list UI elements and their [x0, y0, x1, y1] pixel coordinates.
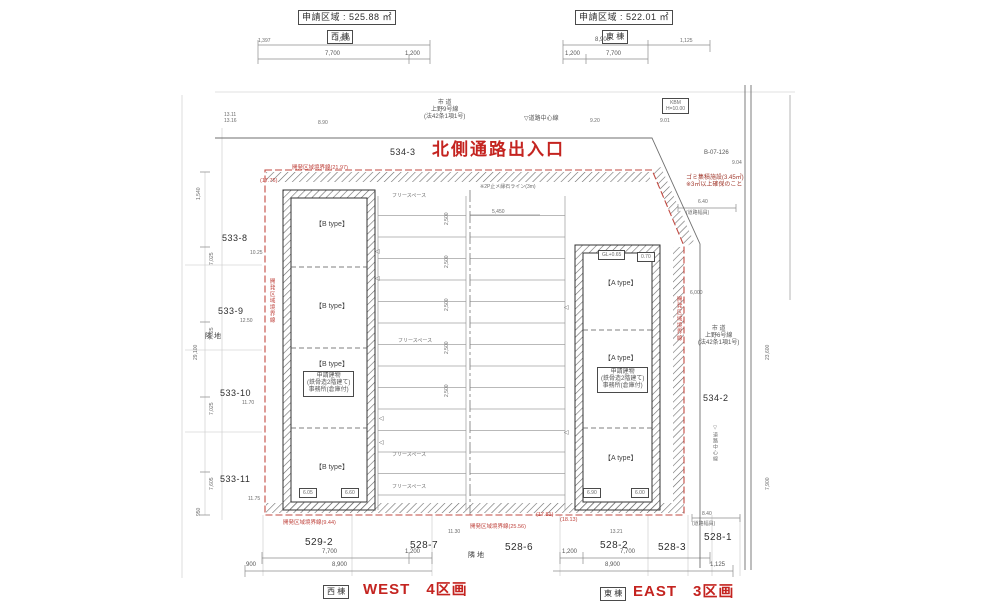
parcel-534-3: 534-3 — [390, 147, 416, 158]
spot-elev-2: 9.20 — [590, 118, 600, 124]
stall-dim-3: 2,500 — [444, 298, 450, 311]
elev-b1: 11.30 — [448, 529, 460, 535]
unit-a3-label: 【A type】 — [604, 455, 637, 463]
spot-elev-1: 8.90 — [318, 120, 328, 126]
gl-box-e-top2: 0.70 — [637, 252, 655, 262]
parcel-533-8: 533-8 — [222, 233, 248, 244]
dim-bot-east-1: 1,200 — [562, 549, 577, 556]
west-wing-caption: 西 棟 — [323, 585, 349, 599]
east-caption: EAST 3区画 — [633, 583, 734, 601]
parcel-529-2: 529-2 — [305, 537, 333, 549]
north-road-name: 市 道 上野9号線 (法42条1項1号) — [424, 100, 465, 122]
gl-box-e-top: GL+0.65 — [598, 250, 625, 260]
east-road-centerline-label: ▽道路中心線 — [712, 425, 718, 462]
dim-bot-west-total: 8,900 — [332, 562, 347, 569]
dim-top-west-total: 8,900 — [335, 37, 350, 44]
east-wing-caption: 東 棟 — [600, 587, 626, 601]
door-marker-icon-3: ◁ — [379, 416, 384, 423]
road-width-dim-ne: 6.40 — [698, 199, 708, 205]
spot-elev-nw: 13.11 13.16 — [224, 112, 237, 124]
dim-bot-west-1: 7,700 — [322, 549, 337, 556]
dim-right-2: 7,900 — [765, 477, 771, 490]
door-marker-icon-4: ◁ — [379, 440, 384, 447]
north-entrance-title: 北側通路出入口 — [432, 140, 565, 160]
dim-left-5: 7,605 — [209, 477, 215, 490]
parcel-528-3: 528-3 — [658, 542, 686, 554]
dim-east-6000: 6,000 — [690, 290, 703, 296]
road-width-label-ne: (道路幅員) — [686, 210, 709, 216]
stall-dim-2: 2,500 — [444, 255, 450, 268]
road-width-dim-se: 8.40 — [702, 511, 712, 517]
unit-b4-label: 【B type】 — [315, 464, 349, 472]
west-area-label: 申請区域 : 525.88 ㎡ — [298, 10, 396, 25]
parcel-528-1: 528-1 — [704, 532, 732, 544]
gl-box-e2: 6.00 — [631, 488, 649, 498]
benchmark-id: B-07-126 — [704, 150, 729, 157]
boundary-label-bottom-left: 開発区域境界線(9.44) — [283, 520, 336, 527]
gl-box-w1: 6.05 — [299, 488, 317, 498]
aisle-dim: 5,450 — [492, 209, 505, 215]
dim-top-west-left: 1,397 — [258, 38, 271, 44]
dim-left-total: 29,100 — [193, 345, 199, 360]
east-building-note: 申請建物 (鉄骨造2階建て) 事務所(倉庫付) — [597, 367, 648, 393]
dim-left-2: 7,025 — [209, 252, 215, 265]
dim-bot-east-3: 1,125 — [710, 562, 725, 569]
gl-box-w2: 6.60 — [341, 488, 359, 498]
plan-linework — [0, 0, 1000, 613]
dim-bot-west-3: 900 — [246, 562, 256, 569]
spot-elev-4: 9.04 — [732, 160, 742, 166]
door-marker-icon-1: ◁ — [375, 249, 380, 256]
dim-top-west-1: 7,700 — [325, 51, 340, 58]
dim-bot-east-total: 8,900 — [605, 562, 620, 569]
boundary-label-bottom-right: 開発区域境界線(25.56) — [470, 524, 526, 531]
boundary-label-top: 開発区域境界線(21.97) — [292, 165, 348, 172]
kbm-box: KBM H=10.00 — [662, 98, 689, 114]
dim-top-east-right: 1,125 — [680, 38, 693, 44]
dim-left-4: 7,025 — [209, 402, 215, 415]
unit-a1-label: 【A type】 — [604, 280, 637, 288]
west-caption: WEST 4区画 — [363, 581, 468, 599]
north-road-centerline-label: ▽道路中心線 — [524, 116, 559, 123]
dim-top-east-1: 1,200 — [565, 51, 580, 58]
dim-left-3: 7,025 — [209, 327, 215, 340]
dim-right-1: 23,600 — [765, 345, 771, 360]
parcel-534-2: 534-2 — [703, 393, 729, 404]
free-space-4: フリースペース — [392, 484, 426, 490]
dim-left-1: 1,540 — [196, 187, 202, 200]
elev-b2: 13.21 — [610, 529, 623, 535]
parking-stalls — [378, 190, 565, 515]
unit-a2-label: 【A type】 — [604, 355, 637, 363]
elev-533-8: 10.25 — [250, 250, 263, 256]
elev-533-10: 11.70 — [242, 400, 254, 406]
boundary-len-bottom-1: (17.81) — [536, 512, 553, 519]
door-marker-icon-5: ◁ — [564, 305, 569, 312]
spot-elev-3: 9.01 — [660, 118, 670, 124]
free-space-1: フリースペース — [392, 193, 426, 199]
east-area-label: 申請区域 : 522.01 ㎡ — [575, 10, 673, 25]
curb-line-note: ※2P止メ縁石ライン(3m) — [480, 184, 536, 190]
dim-top-west-2: 1,200 — [405, 51, 420, 58]
elev-533-9: 12.50 — [240, 318, 253, 324]
neighbor-land-bottom: 隣 地 — [468, 552, 484, 560]
unit-b3-label: 【B type】 — [315, 361, 349, 369]
dim-bot-east-2: 7,700 — [620, 549, 635, 556]
unit-b2-label: 【B type】 — [315, 303, 349, 311]
parcel-533-10: 533-10 — [220, 388, 251, 399]
parcel-533-9: 533-9 — [218, 306, 244, 317]
door-marker-icon-2: ◁ — [375, 276, 380, 283]
stall-dim-1: 2,500 — [444, 212, 450, 225]
boundary-label-right: 開発区域境界線 — [675, 296, 682, 342]
west-building — [283, 190, 375, 510]
unit-b1-label: 【B type】 — [315, 221, 349, 229]
dim-top-east-2: 7,700 — [606, 51, 621, 58]
parcel-528-6: 528-6 — [505, 542, 533, 554]
door-marker-icon-6: ◁ — [564, 430, 569, 437]
stall-dim-5: 2,500 — [444, 384, 450, 397]
parcel-533-11: 533-11 — [220, 474, 250, 485]
boundary-len-bottom-2: (18.13) — [560, 517, 577, 524]
garbage-note: ゴミ集積施設(3.45㎡) ※3㎡以上確保のこと — [686, 175, 744, 189]
east-road-name: 市 道 上野6号線 (法42条1項1号) — [698, 326, 739, 348]
free-space-2: フリースペース — [398, 338, 432, 344]
stall-dim-4: 2,500 — [444, 341, 450, 354]
free-space-3: フリースペース — [392, 452, 426, 458]
gl-box-e1: 6.90 — [583, 488, 601, 498]
boundary-len-top-left: (17.76) — [260, 178, 277, 185]
dim-top-east-total: 8,900 — [595, 37, 610, 44]
elev-533-11: 11.75 — [248, 496, 260, 502]
site-plan: 申請区域 : 525.88 ㎡西 棟申請区域 : 522.01 ㎡東 棟8,90… — [0, 0, 1000, 613]
boundary-label-left: 開発区域境界線 — [268, 278, 275, 324]
dim-left-6: 950 — [196, 508, 202, 516]
west-building-note: 申請建物 (鉄骨造2階建て) 事務所(倉庫付) — [303, 371, 354, 397]
road-width-label-se: (道路幅員) — [692, 521, 715, 527]
dim-bot-west-2: 1,200 — [405, 549, 420, 556]
